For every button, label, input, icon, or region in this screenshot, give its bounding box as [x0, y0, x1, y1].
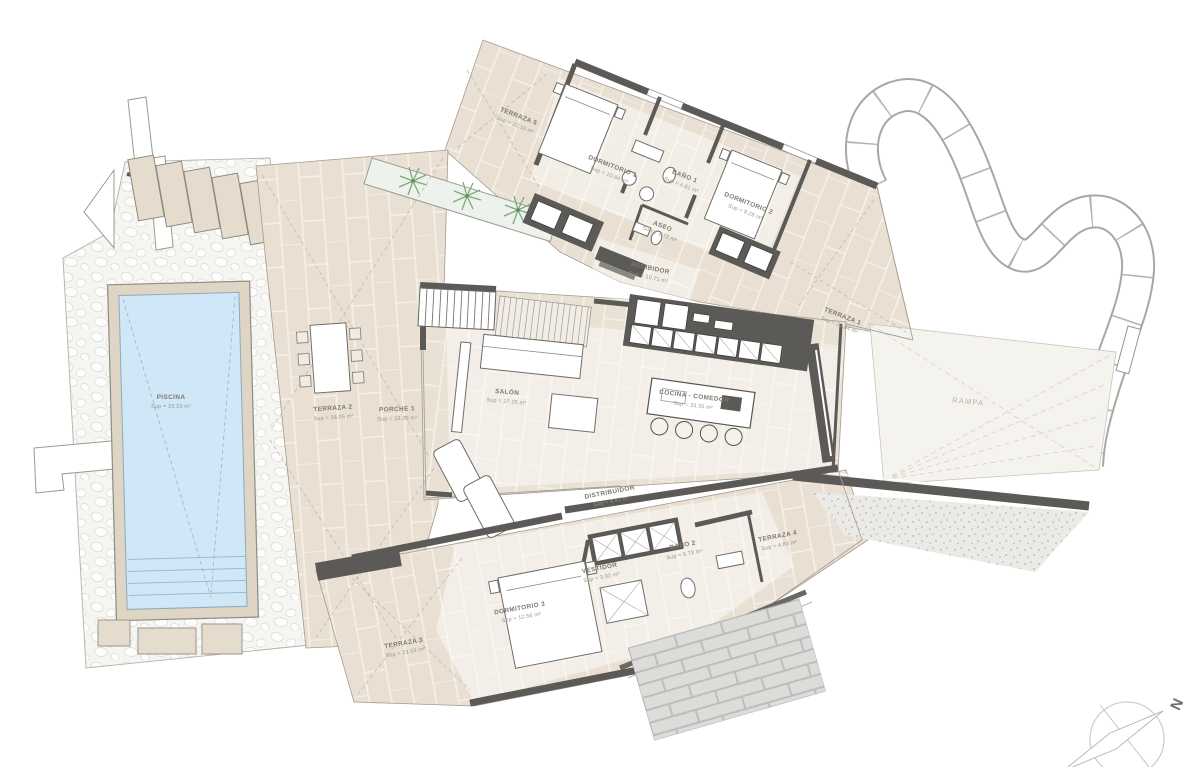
- pool: [108, 281, 259, 621]
- compass-needle: [1063, 711, 1163, 767]
- entry-triangle-ramp: [84, 170, 114, 248]
- outdoor-dining-set: [296, 322, 365, 394]
- bath-2-shower: [600, 580, 648, 623]
- dining-table: [310, 323, 351, 393]
- floor-plan-svg: N PISCINA Sup = 33.23 m² TERRAZA 5 Sup =…: [0, 0, 1200, 767]
- pool-water: [119, 292, 247, 609]
- compass-north-label: N: [1166, 695, 1186, 712]
- room-name: PORCHE 1: [379, 405, 415, 413]
- compass-rose: N: [1063, 695, 1186, 767]
- staircase: [418, 282, 496, 330]
- ramp-area: [870, 324, 1116, 484]
- floor-plan-canvas: N PISCINA Sup = 33.23 m² TERRAZA 5 Sup =…: [0, 0, 1200, 767]
- room-name: PISCINA: [157, 394, 186, 401]
- coffee-table: [548, 394, 597, 433]
- room-area: Sup = 33.23 m²: [151, 404, 191, 410]
